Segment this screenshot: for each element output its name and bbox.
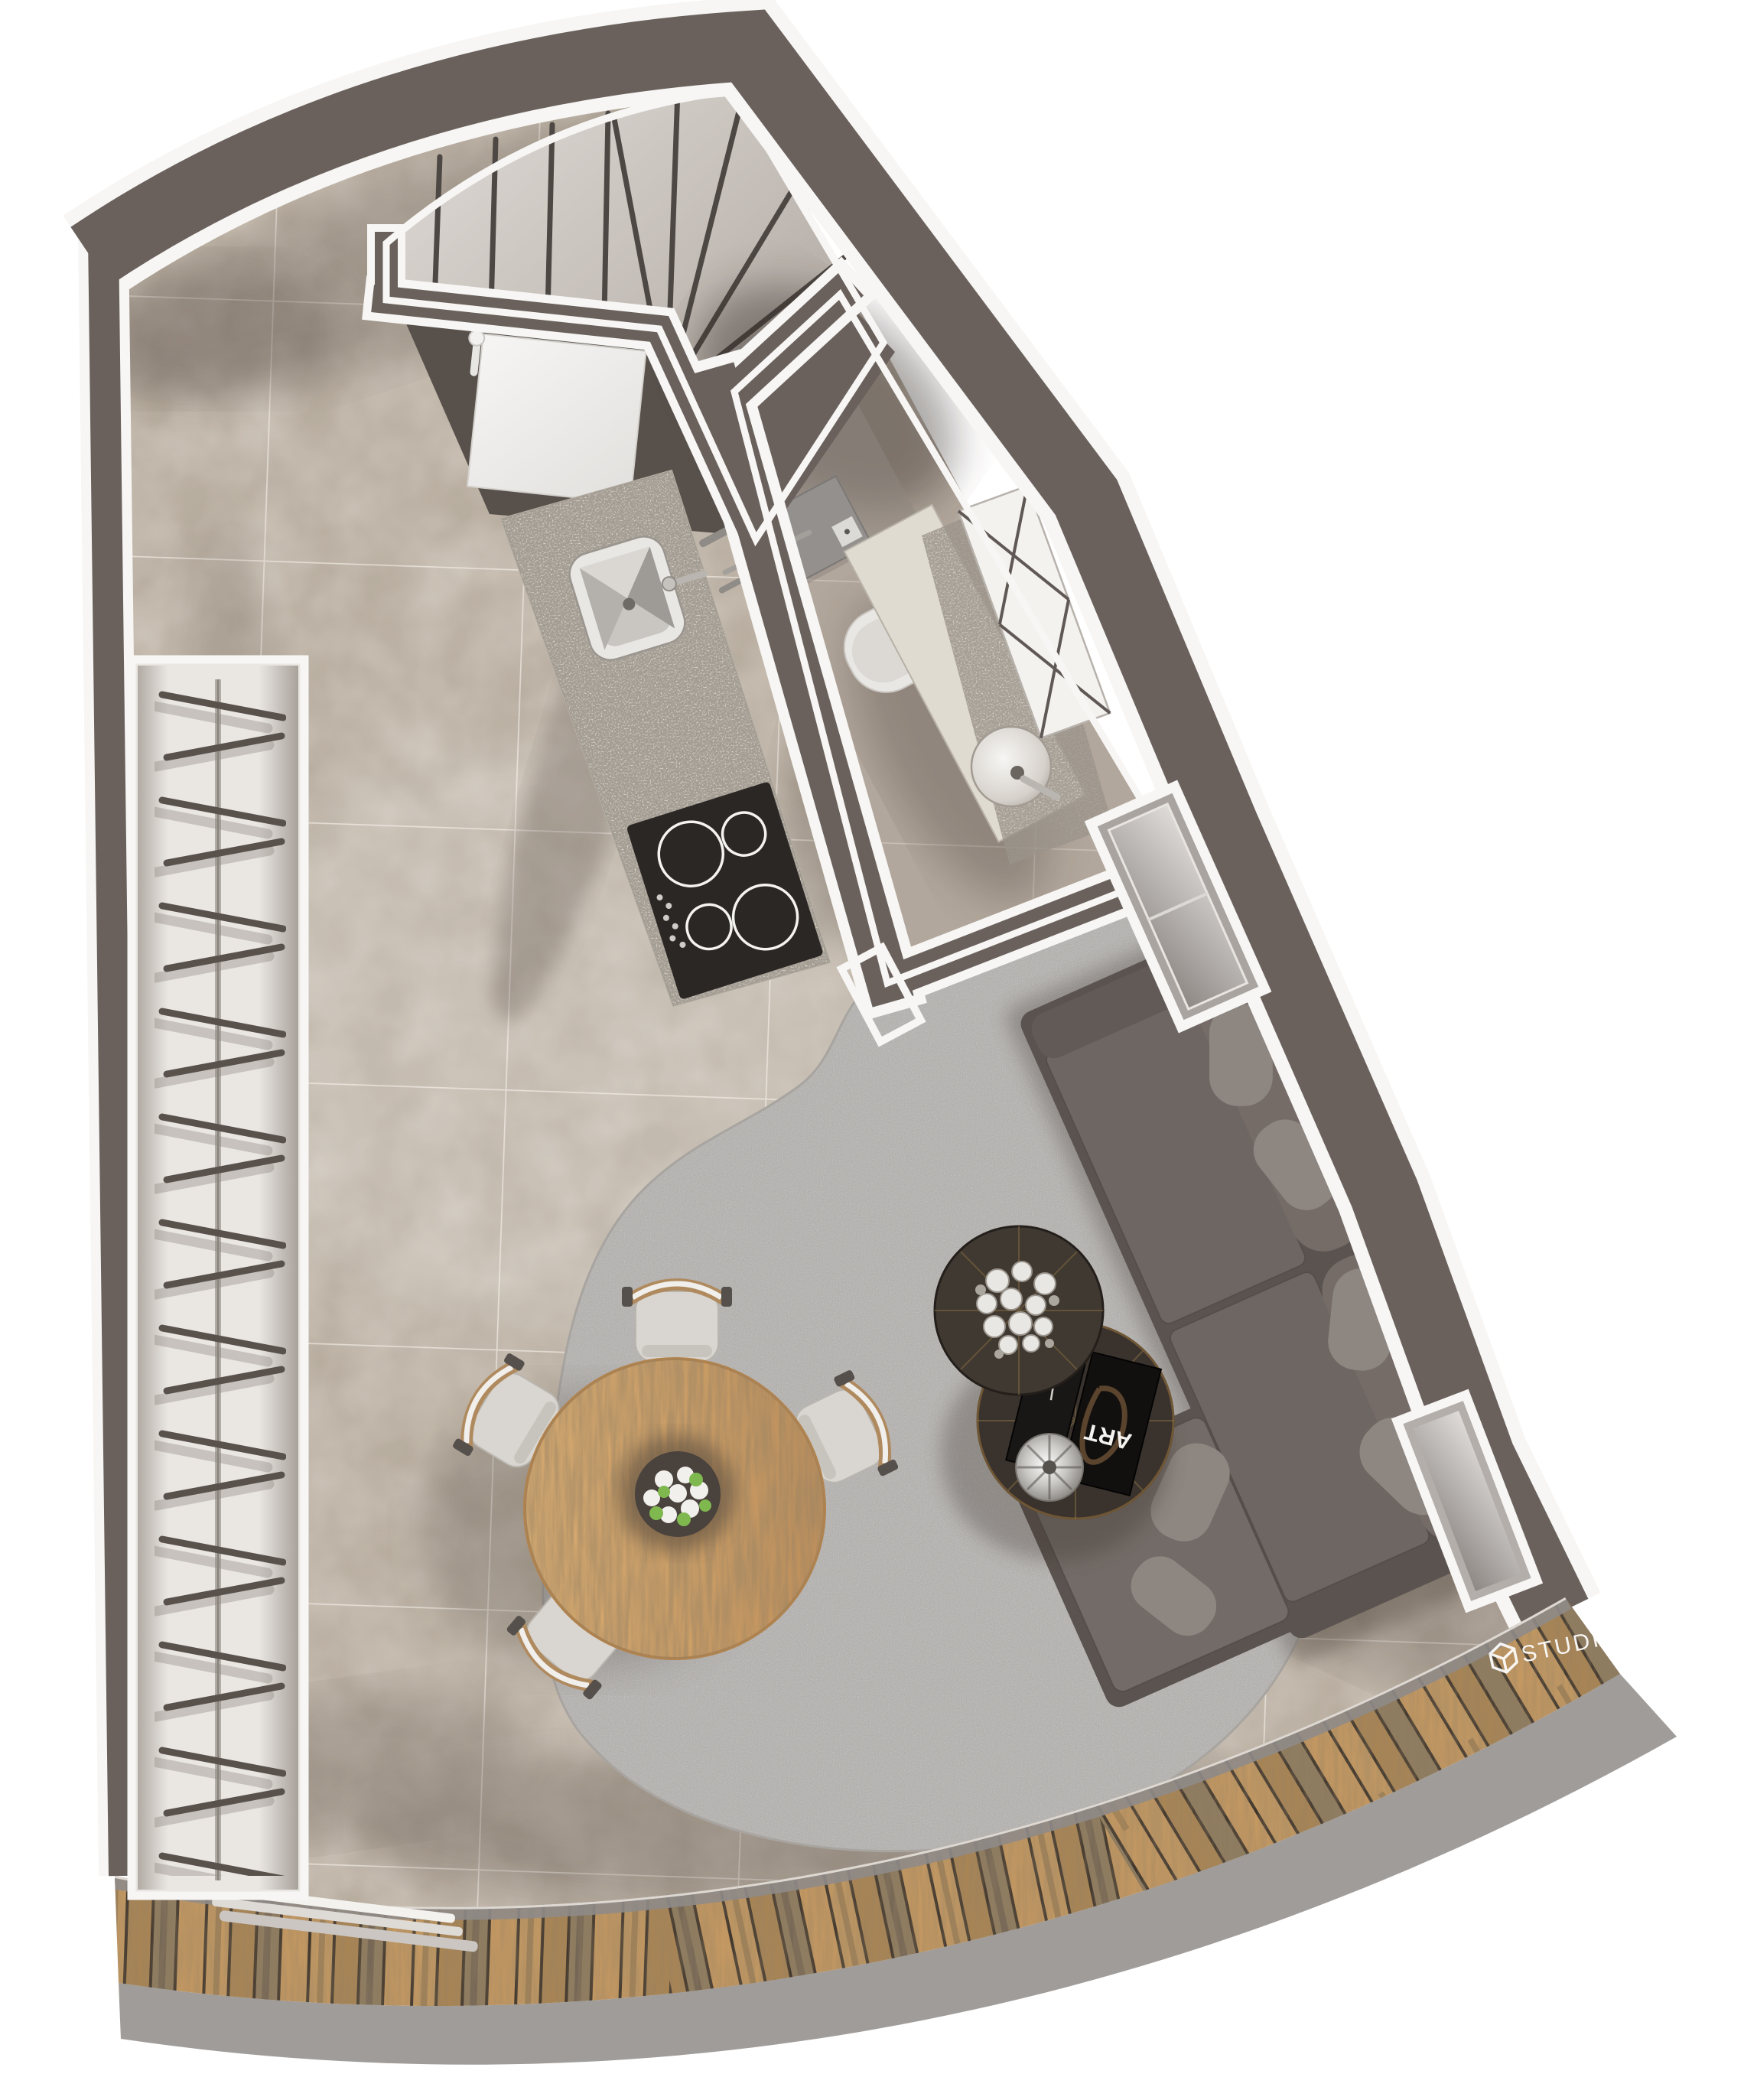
- clothes-hangers: [155, 678, 286, 1876]
- fruit-bowl-centerpiece: [635, 1451, 721, 1537]
- dining-chair-top: [622, 1284, 732, 1362]
- floor-plan-rendering: ART: [0, 0, 1744, 2100]
- fridge: [454, 330, 646, 503]
- round-dining-table: [525, 1359, 825, 1659]
- left-wall: [103, 236, 124, 1876]
- wardrobe: [132, 659, 304, 1896]
- decor-bowl: [1016, 1434, 1083, 1501]
- coffee-table-flowers: [935, 1226, 1103, 1395]
